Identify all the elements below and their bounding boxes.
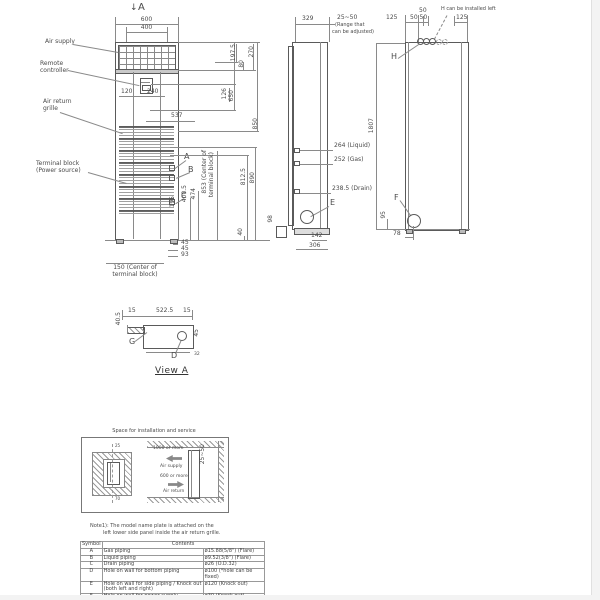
dim-line <box>312 240 327 241</box>
space-return-dim: 600 or more <box>160 474 188 479</box>
air-return-grille-slats <box>119 126 174 214</box>
dim-line <box>300 193 331 194</box>
dim-line <box>255 147 256 240</box>
row-symbol: D <box>81 569 103 582</box>
note-h-install: H can be installed left <box>441 7 496 13</box>
ext-line <box>150 110 236 111</box>
table-row: E Hole on wall for side piping / Knock o… <box>81 581 265 594</box>
ext-line <box>178 70 256 71</box>
knockout-e-circle <box>300 210 314 224</box>
dim-line <box>173 244 178 245</box>
dim-line <box>190 198 191 240</box>
dim-50-50: 50 50 <box>410 15 427 22</box>
dim-liquid: 264 (Liquid) <box>334 143 370 150</box>
dim-1807: 1807 <box>369 118 375 133</box>
callout-h: H <box>391 52 397 61</box>
dim-line <box>387 219 388 229</box>
page-edge-bottom <box>0 595 600 600</box>
ext-line <box>151 84 236 85</box>
dim-853-2: terminal block) <box>209 152 215 197</box>
dim-drain: 238.5 (Drain) <box>332 186 372 193</box>
dim-line <box>405 22 428 23</box>
ext-line <box>178 42 260 43</box>
knockout-f-circle <box>407 214 421 228</box>
view-a-flange-line <box>127 325 128 334</box>
dim-line <box>376 43 377 229</box>
foot <box>116 239 124 244</box>
note-line2: left lower side panel inside the air ret… <box>103 531 220 537</box>
row-spec: ø100 (*hole can be fixed) <box>203 569 264 582</box>
dim-line <box>300 164 333 165</box>
knockout-d-circle <box>177 331 187 341</box>
rear-inner-line <box>408 42 409 229</box>
range-note-2: can be adjusted) <box>332 30 374 36</box>
table-row: A Gas piping ø15.88(5/8") (Flare) <box>81 548 265 555</box>
callout-e: E <box>330 198 335 207</box>
dim-474: 474 <box>191 188 197 199</box>
section-label: A <box>138 2 145 14</box>
dim-line <box>122 316 192 317</box>
space-centerline <box>112 444 113 503</box>
dim-812-5: 812.5 <box>241 168 247 185</box>
space-return-label: Air return <box>163 489 184 494</box>
dim-120: 120 <box>121 89 132 96</box>
dim-600: 600 <box>115 17 178 24</box>
space-supply-dim: 1000 or more <box>153 446 184 451</box>
space-title: Space for installation and service <box>81 429 227 435</box>
view-a-flange <box>127 327 145 334</box>
dim-270: 270 <box>249 46 255 57</box>
row-contents: Hole on wall for side piping / Knock out… <box>102 581 203 594</box>
front-band <box>115 69 179 74</box>
dim-45-view-a: 45 <box>194 329 200 337</box>
space-dim-bottom: 70 <box>115 497 120 502</box>
dim-15-left: 15 <box>128 308 136 315</box>
dim-850: 850 <box>253 118 259 129</box>
knockout-b <box>169 175 175 181</box>
row-symbol: A <box>81 548 103 555</box>
dim-line <box>178 220 179 240</box>
ext-line <box>167 27 168 42</box>
knockout-h-alt-circle <box>442 39 448 45</box>
dim-40-5: 40.5 <box>116 312 122 325</box>
dim-78: 78 <box>393 231 401 238</box>
range-note: (Range that <box>335 23 365 29</box>
dim-650: 650 <box>229 90 235 101</box>
row-contents: Hole on wall for bottom piping <box>102 569 203 582</box>
ext-line <box>428 16 429 26</box>
ext-line <box>295 17 296 42</box>
space-plan-unit <box>107 462 120 485</box>
dim-890: 890 <box>250 172 256 183</box>
foot <box>459 229 466 234</box>
dim-125-left: 125 <box>386 15 397 22</box>
view-a-lip <box>146 352 190 353</box>
dim-537: 537 <box>171 113 182 120</box>
callout-f: F <box>394 193 399 202</box>
table-row: D Hole on wall for bottom piping ø100 (*… <box>81 569 265 582</box>
label-air-return-2: grille <box>43 106 58 113</box>
dim-98: 98 <box>268 215 274 223</box>
dim-400: 400 <box>126 25 167 32</box>
dim-95: 95 <box>381 211 387 219</box>
dim-line <box>244 236 245 240</box>
ext-line <box>329 17 330 42</box>
rear-unit-outline <box>405 42 469 231</box>
dim-line <box>405 237 413 238</box>
dim-32: 32 <box>194 352 200 357</box>
space-plan-unit-line <box>110 463 111 482</box>
remote-controller-line <box>141 82 150 83</box>
row-contents: Gas piping <box>102 548 203 555</box>
dim-197-5: 197.5 <box>231 44 237 61</box>
space-floor-line <box>147 497 224 498</box>
space-dim-top: 25 <box>115 444 120 449</box>
note-line1: Note1): The model name plate is attached… <box>90 524 214 530</box>
row-symbol: E <box>81 581 103 594</box>
fixing-bracket <box>276 226 287 238</box>
ext-line <box>122 310 123 320</box>
dim-15-right: 15 <box>183 308 191 315</box>
dim-gas: 252 (Gas) <box>334 157 364 164</box>
side-unit-outline <box>292 42 328 230</box>
drawing-page: ↓ A 600 400 120 240 537 Air supply Remot… <box>0 0 600 600</box>
dim-line <box>217 151 218 240</box>
view-a-title: View A <box>155 366 188 376</box>
foot <box>406 229 413 234</box>
dim-line <box>300 150 333 151</box>
dim-line <box>119 96 165 97</box>
dim-195: 195 <box>170 196 176 207</box>
label-remote-2: controller <box>40 68 69 75</box>
dim-line <box>198 191 199 240</box>
ext-line <box>178 17 179 42</box>
side-front-panel <box>288 46 294 226</box>
symbol-table: Symbol Contents A Gas piping ø15.88(5/8"… <box>80 541 265 600</box>
knockout-h-circle <box>429 38 436 45</box>
ext-line <box>178 131 259 132</box>
ext-line <box>192 310 193 320</box>
row-spec: ø15.88(5/8") (Flare) <box>203 548 264 555</box>
dim-line <box>168 250 178 251</box>
leader-line <box>60 112 123 134</box>
dim-line <box>247 155 248 240</box>
space-supply-label: Air supply <box>160 464 182 469</box>
dim-240: 240 <box>147 89 158 96</box>
dim-400-5: 400.5 <box>182 185 188 202</box>
dim-line <box>146 121 195 122</box>
row-spec: ø120 (Knock out) <box>203 581 264 594</box>
ext-line <box>405 15 406 42</box>
ext-line <box>170 147 257 148</box>
dim-line <box>126 32 167 33</box>
page-edge-right <box>591 0 600 600</box>
space-wall-line <box>218 441 219 502</box>
dim-25-50: 25~50 <box>337 15 357 22</box>
dim-329: 329 <box>302 16 313 23</box>
dim-142: 142 <box>311 233 322 240</box>
section-arrow-icon: ↓ <box>130 3 138 13</box>
dim-150-2: terminal block) <box>106 272 164 279</box>
space-side-unit-line <box>191 450 192 497</box>
rear-inner-line <box>461 42 462 229</box>
dim-522-5: 522.5 <box>156 308 173 315</box>
ext-line <box>454 16 455 26</box>
dim-80: 80 <box>239 60 245 68</box>
dim-125-right: 125 <box>456 15 467 22</box>
space-dim-gap: 25~50 <box>200 444 206 464</box>
side-inner-line <box>320 42 321 228</box>
leader-line-dashed <box>434 15 448 39</box>
dim-40: 40 <box>238 228 244 236</box>
ext-line <box>376 43 405 44</box>
dim-line <box>295 24 335 25</box>
dim-line <box>168 256 178 257</box>
label-terminal-block-2: (Power source) <box>36 168 81 175</box>
leader-line <box>73 44 118 53</box>
dim-306: 306 <box>309 243 320 250</box>
label-air-supply: Air supply <box>45 39 75 46</box>
dim-line <box>454 22 467 23</box>
dim-93: 93 <box>181 252 189 259</box>
air-supply-grille <box>118 45 176 70</box>
